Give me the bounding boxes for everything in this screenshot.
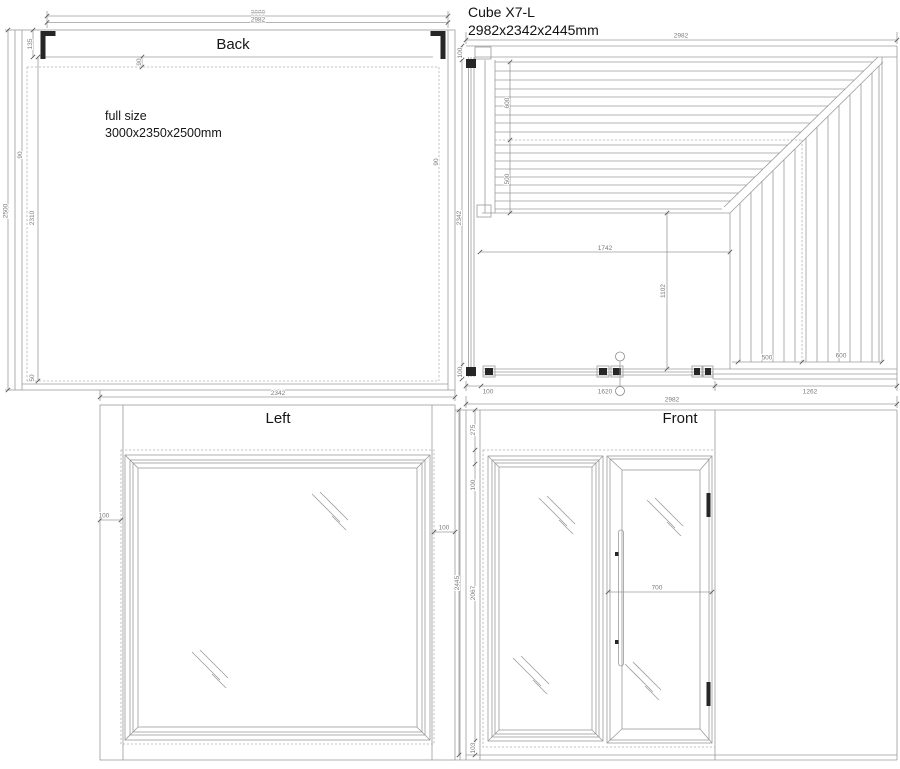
door-handle-bar	[619, 530, 624, 666]
door-hinge-top	[707, 493, 711, 517]
plan-dim-bench-deep: 600	[504, 97, 511, 108]
drawing-sheet: Cube X7-L 2982x2342x2445mm	[0, 0, 900, 769]
door-handle-knob-bottom	[616, 387, 625, 396]
door-handle-knob-top	[616, 352, 625, 361]
back-dim-corner: 135	[27, 38, 34, 49]
handle-mount-top	[615, 552, 619, 556]
plan-dim-front-glazing: 1620	[598, 389, 613, 396]
back-dim-width: 2982	[251, 17, 266, 24]
front-dim-top-frame: 275	[470, 424, 477, 435]
left-view-linework	[98, 390, 457, 760]
back-view-title: Back	[216, 36, 250, 53]
back-dim-right-wall: 90	[433, 158, 440, 166]
front-dim-width: 2982	[665, 397, 680, 404]
left-view: 2342 Left 100 100	[80, 390, 460, 769]
plan-view-linework	[460, 32, 899, 391]
door-hinge-bottom	[707, 682, 711, 706]
plan-dim-front-corner: 100	[483, 389, 494, 396]
plan-view: 2982 100 2342 100 600 500 1742 1102 500 …	[455, 0, 900, 396]
plan-dim-depth: 2342	[456, 210, 463, 225]
front-dim-total-height: 2445	[454, 575, 461, 590]
left-dim-width: 2342	[271, 390, 286, 397]
plan-dim-interior-depth: 1102	[660, 284, 667, 298]
back-note-line2: 3000x2350x2500mm	[105, 126, 222, 140]
plan-dim-width-top: 2982	[674, 33, 689, 40]
front-dim-glass-inset: 100	[470, 479, 477, 490]
left-view-title: Left	[265, 410, 291, 427]
door-hardware	[615, 493, 711, 706]
plan-dim-bench-shallow: 500	[504, 173, 511, 184]
back-dim-height: 2500	[3, 203, 10, 218]
corner-bracket-left	[41, 31, 56, 59]
handle-mount-bottom	[615, 640, 619, 644]
plan-dim-interior-width: 1742	[598, 245, 613, 252]
back-dim-top-inset: 90	[136, 58, 143, 66]
front-view-title: Front	[662, 410, 698, 427]
plan-dim-corner-bench-right: 600	[836, 353, 847, 360]
back-dim-bottom: 50	[29, 374, 36, 382]
wall-hinge-bottom	[466, 367, 476, 376]
front-view-linework	[455, 396, 899, 760]
back-view-linework	[5, 11, 455, 392]
corner-bracket-right	[431, 31, 446, 59]
back-dim-left-wall: 90	[17, 151, 24, 159]
left-dim-frame-right: 100	[439, 525, 450, 532]
plan-dim-left-top: 100	[457, 47, 464, 58]
plan-dim-corner-bench-left: 500	[762, 355, 773, 362]
back-view: 3000 2982 Back full size 3000x2350x2500m…	[0, 0, 460, 396]
front-dim-door-width: 700	[652, 585, 663, 592]
plan-dim-left-bottom: 100	[457, 366, 464, 377]
wall-hinge-top	[466, 59, 476, 68]
front-dim-opening-height: 2067	[470, 585, 477, 600]
front-view: 2982 Front 275 100 2067 103 2445 700	[455, 396, 900, 769]
left-dim-frame-left: 100	[99, 513, 110, 520]
front-dim-bottom-frame: 103	[470, 742, 477, 753]
plan-dim-front-wall: 1262	[803, 389, 818, 396]
back-note-line1: full size	[105, 109, 147, 123]
plan-hinges-and-hardware	[466, 59, 713, 396]
back-dim-old-width: 3000	[251, 10, 266, 17]
back-dim-inner-height: 2310	[29, 210, 36, 225]
